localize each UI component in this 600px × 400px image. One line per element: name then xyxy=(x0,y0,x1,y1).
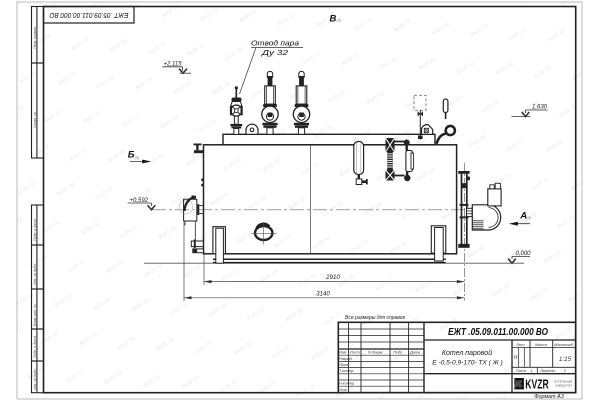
svg-text:1: 1 xyxy=(530,368,532,373)
svg-text:Подп.: Подп. xyxy=(393,351,403,355)
svg-text:Разраб.: Разраб. xyxy=(339,357,353,361)
svg-text:Дата: Дата xyxy=(409,351,420,355)
svg-text:Формат А3: Формат А3 xyxy=(534,394,564,400)
svg-text:+2,115: +2,115 xyxy=(164,62,183,68)
svg-text:Масса: Масса xyxy=(535,342,548,347)
svg-text:Все размеры для справок: Все размеры для справок xyxy=(345,315,406,321)
svg-text:ЗАВОД РЭП: ЗАВОД РЭП xyxy=(555,384,572,388)
svg-text:+0,592: +0,592 xyxy=(130,198,149,204)
svg-text:KVZR: KVZR xyxy=(525,377,549,391)
svg-text:1:15: 1:15 xyxy=(559,356,572,363)
svg-text:Инв. № подл.: Инв. № подл. xyxy=(33,368,37,390)
svg-text:Ду 32: Ду 32 xyxy=(261,48,288,57)
svg-text:Котел паровой: Котел паровой xyxy=(442,349,492,357)
svg-text:Листов: Листов xyxy=(539,368,555,373)
svg-text:Инв. № дубл.: Инв. № дубл. xyxy=(33,263,37,285)
svg-text:Взам. инв. №: Взам. инв. № xyxy=(33,304,37,326)
svg-text:Н.контр.: Н.контр. xyxy=(339,382,355,386)
svg-text:N докум.: N докум. xyxy=(368,351,383,355)
svg-text:Лист: Лист xyxy=(349,351,360,355)
svg-text:Лист: Лист xyxy=(515,368,527,373)
svg-text:(5): (5) xyxy=(527,215,533,220)
svg-text:3140: 3140 xyxy=(316,290,330,297)
svg-text:Пров.: Пров. xyxy=(339,363,349,367)
svg-text:1,630: 1,630 xyxy=(532,105,548,111)
svg-text:Изм.: Изм. xyxy=(339,351,347,355)
svg-text:Справ. №: Справ. № xyxy=(33,112,37,128)
svg-text:Т.контр.: Т.контр. xyxy=(339,369,354,373)
svg-text:Масштаб: Масштаб xyxy=(554,342,573,347)
svg-text:Утв.: Утв. xyxy=(339,388,348,392)
svg-text:(5): (5) xyxy=(337,18,343,23)
svg-text:Перв. примен.: Перв. примен. xyxy=(33,26,37,49)
svg-text:ЕЖТ .05.09.011.00.000 ВО: ЕЖТ .05.09.011.00.000 ВО xyxy=(49,11,129,18)
svg-text:Е -0,5-0,9-170- ТХ ( Ж ): Е -0,5-0,9-170- ТХ ( Ж ) xyxy=(432,360,503,367)
svg-text:2910: 2910 xyxy=(325,274,340,281)
svg-text:Подп. и дата: Подп. и дата xyxy=(33,336,37,358)
svg-text:0,000: 0,000 xyxy=(516,251,532,257)
svg-text:(5): (5) xyxy=(135,155,141,160)
svg-text:Подп. и дата: Подп. и дата xyxy=(33,219,37,241)
svg-text:В: В xyxy=(330,13,337,24)
svg-text:Отвод пара: Отвод пара xyxy=(251,38,299,47)
svg-text:Лит.: Лит. xyxy=(515,342,525,347)
svg-text:ЕЖТ .05.09.011.00.000 ВО: ЕЖТ .05.09.011.00.000 ВО xyxy=(448,327,548,338)
